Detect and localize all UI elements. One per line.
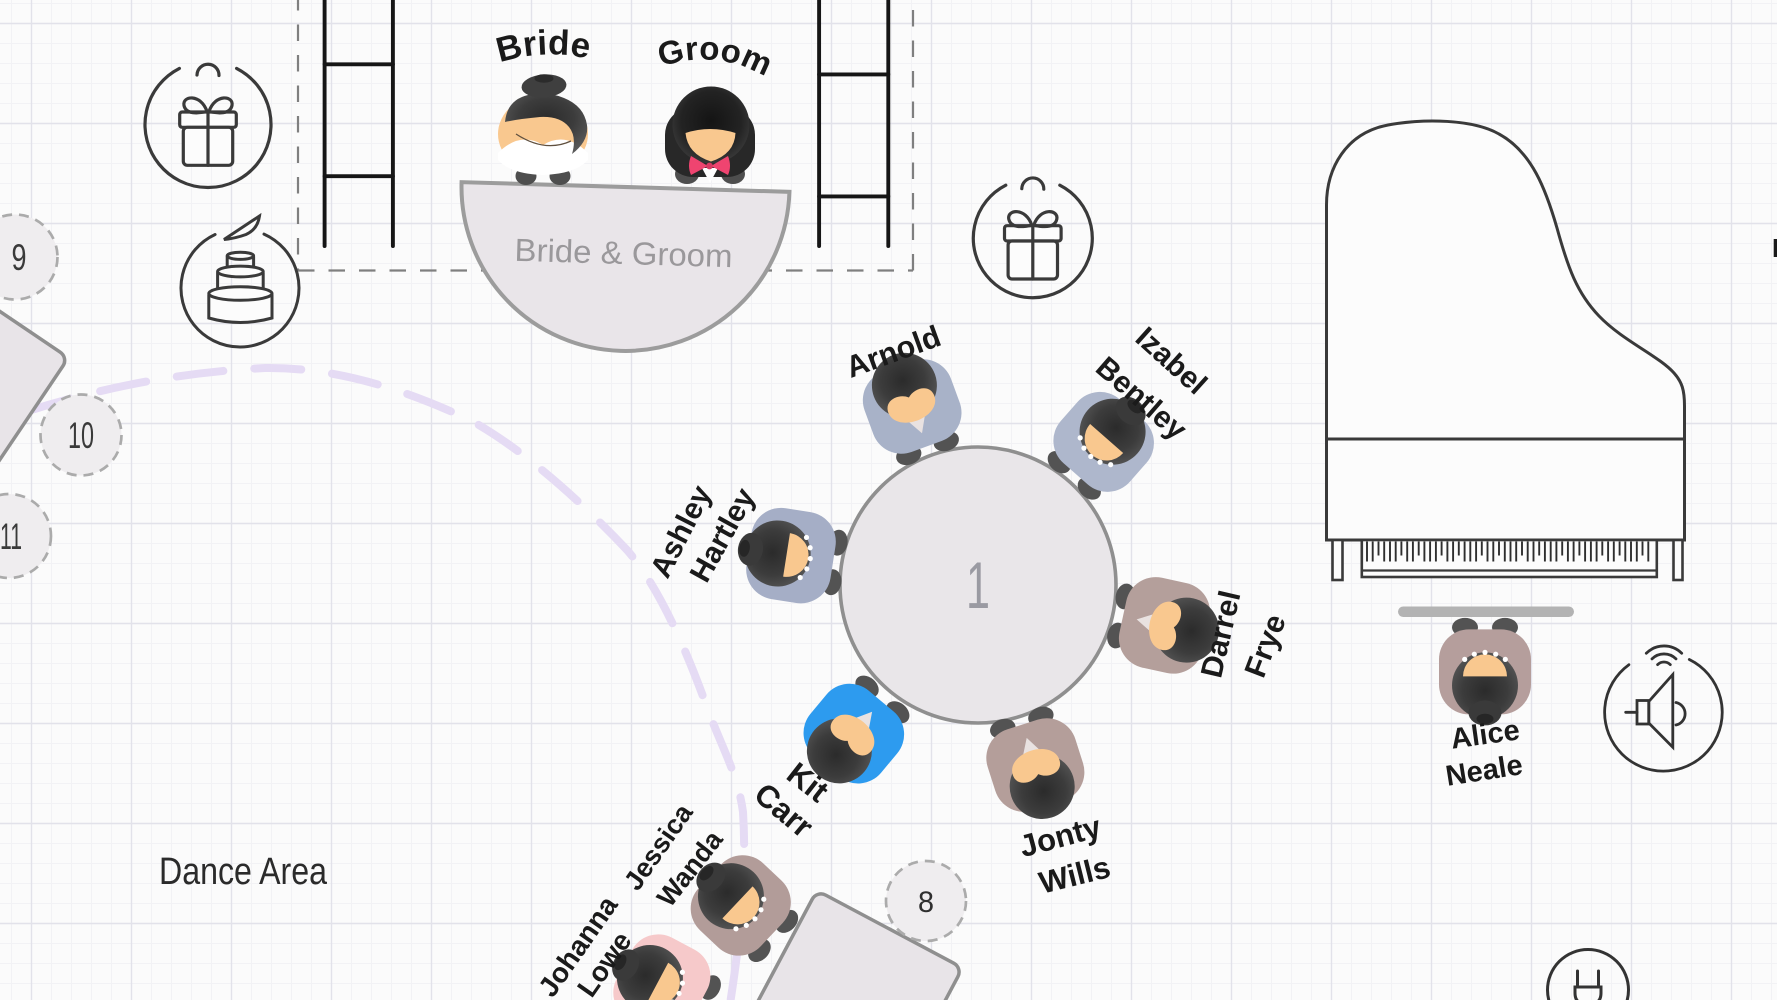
svg-text:10: 10 [68,415,94,456]
svg-text:8: 8 [918,886,934,919]
svg-text:11: 11 [0,516,22,557]
svg-text:Dance Area: Dance Area [159,851,328,893]
svg-text:Bride & Groom: Bride & Groom [514,232,733,274]
svg-text:1: 1 [966,548,990,622]
svg-text:9: 9 [12,237,27,278]
